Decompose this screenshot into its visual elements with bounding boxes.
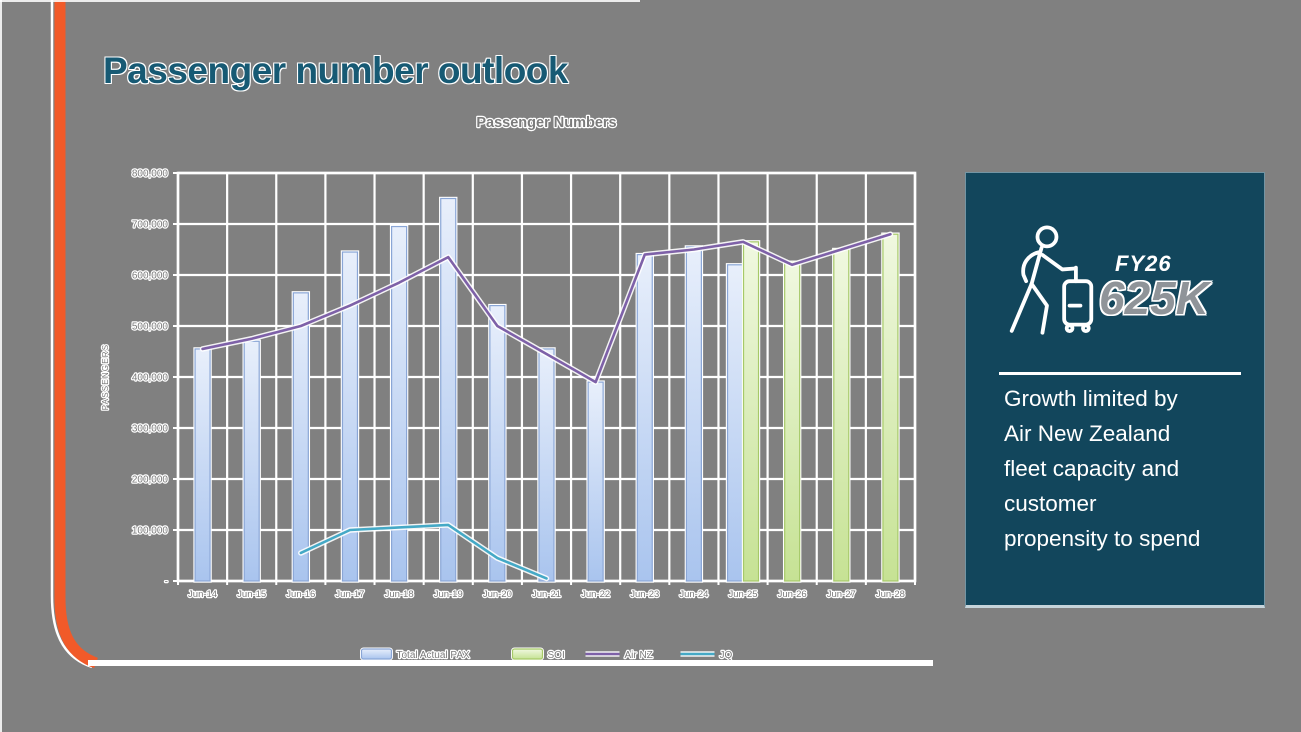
svg-text:Jun-22: Jun-22	[581, 589, 610, 600]
slide-bottom-line	[88, 660, 933, 666]
traveler-front-arm	[1042, 255, 1075, 269]
svg-text:200,000: 200,000	[132, 475, 169, 486]
svg-text:Jun-21: Jun-21	[532, 589, 561, 600]
svg-text:700,000: 700,000	[132, 220, 169, 231]
svg-text:Jun-23: Jun-23	[630, 589, 659, 600]
callout-divider	[999, 372, 1241, 375]
svg-text:800,000: 800,000	[132, 169, 169, 180]
svg-text:Jun-20: Jun-20	[483, 589, 512, 600]
suitcase-body	[1064, 281, 1091, 324]
suitcase-wheel-right	[1083, 325, 1089, 331]
traveler-head	[1037, 227, 1056, 246]
svg-text:Jun-17: Jun-17	[335, 589, 364, 600]
svg-text:-: -	[165, 577, 168, 588]
svg-text:Jun-14: Jun-14	[188, 589, 217, 600]
suitcase-wheel-left	[1067, 325, 1073, 331]
chart-title: Passenger Numbers	[476, 115, 616, 131]
bars	[195, 199, 898, 582]
svg-text:300,000: 300,000	[132, 424, 169, 435]
traveler-front-leg	[1032, 284, 1047, 333]
svg-text:Jun-19: Jun-19	[434, 589, 463, 600]
svg-text:PASSENGERS: PASSENGERS	[101, 344, 110, 411]
slide-top-border	[0, 0, 640, 2]
svg-text:Jun-24: Jun-24	[679, 589, 708, 600]
svg-text:Jun-28: Jun-28	[876, 589, 905, 600]
slide-left-border	[0, 0, 2, 732]
svg-text:Jun-18: Jun-18	[385, 589, 414, 600]
traveler-with-suitcase-icon	[990, 223, 1094, 343]
svg-text:Jun-26: Jun-26	[778, 589, 807, 600]
fy-value: 625K	[1099, 271, 1209, 325]
traveler-back-leg	[1012, 284, 1032, 331]
callout-panel: FY26 625K Growth limited byAir New Zeala…	[965, 172, 1265, 608]
svg-text:100,000: 100,000	[132, 526, 169, 537]
svg-text:600,000: 600,000	[132, 271, 169, 282]
svg-text:400,000: 400,000	[132, 373, 169, 384]
svg-text:Jun-27: Jun-27	[827, 589, 856, 600]
page-title: Passenger number outlook	[103, 50, 568, 92]
passenger-numbers-chart: -100,000200,000300,000400,000500,000600,…	[90, 105, 950, 675]
svg-text:Jun-16: Jun-16	[286, 589, 315, 600]
svg-text:500,000: 500,000	[132, 322, 169, 333]
slide: Passenger number outlook -100,000200,000…	[0, 0, 1301, 732]
callout-description: Growth limited byAir New Zealandfleet ca…	[1004, 381, 1244, 556]
svg-text:Jun-25: Jun-25	[729, 589, 758, 600]
svg-text:Jun-15: Jun-15	[237, 589, 266, 600]
